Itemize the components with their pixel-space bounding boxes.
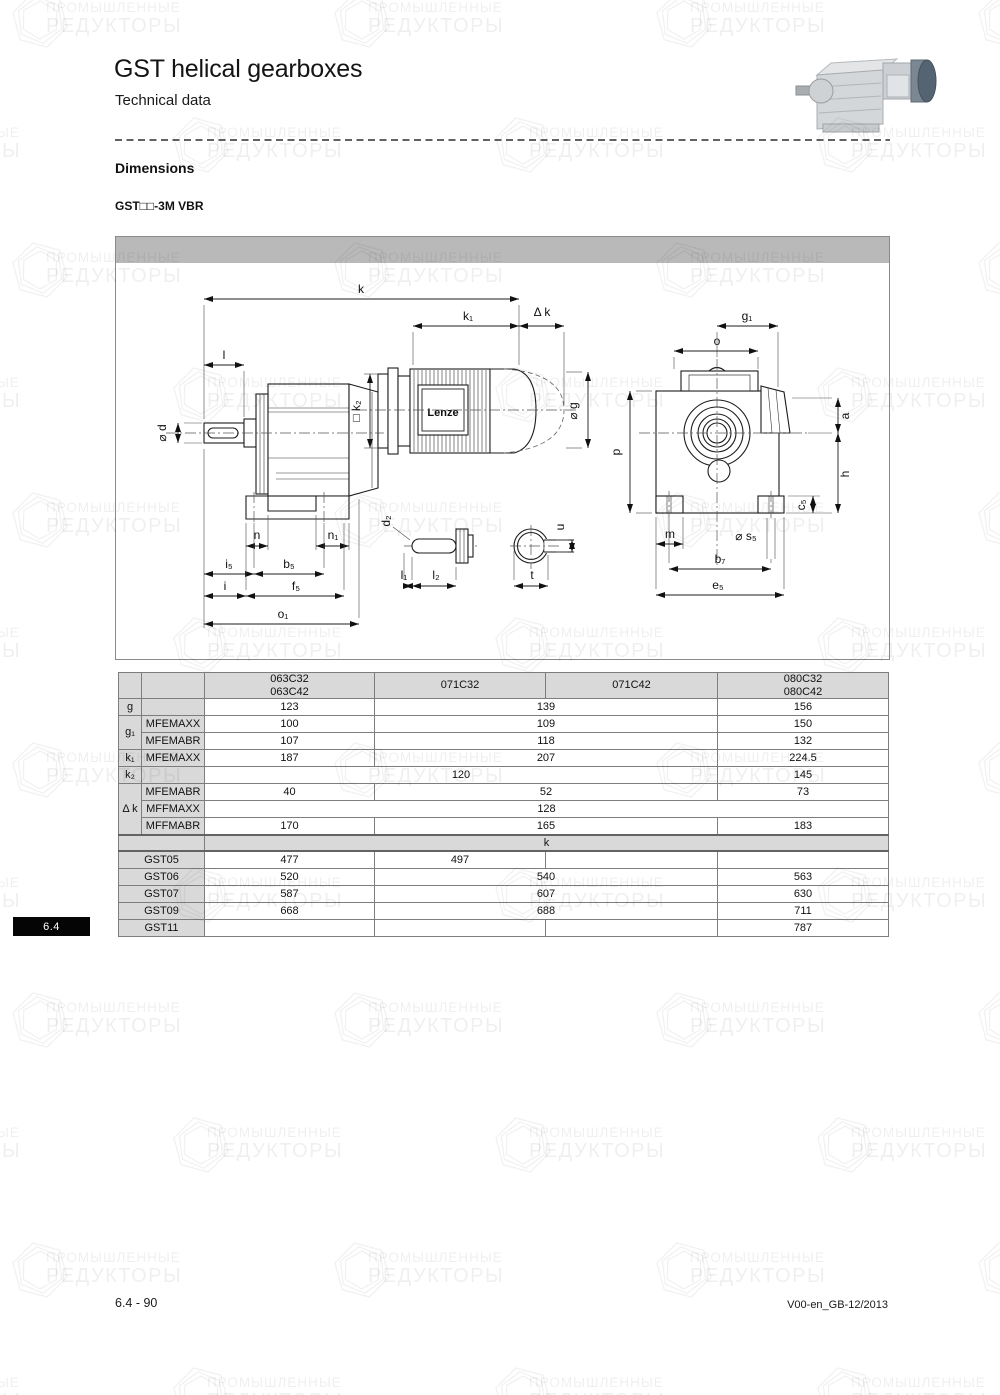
watermark-text-line1: ПРОМЫШЛЕННЫЕ	[207, 1125, 343, 1140]
watermark-item: ПРОМЫШЛЕННЫЕРЕДУКТОРЫ	[974, 738, 1000, 802]
dim-label-a: a	[838, 412, 852, 419]
watermark-text-line2: РЕДУКТОРЫ	[529, 1390, 665, 1395]
value-cell: 170	[205, 818, 375, 836]
table-row-g1-mfemabr: MFEMABR 107 118 132	[119, 733, 889, 750]
corner-cell	[119, 673, 142, 699]
dim-label-f5: f₅	[292, 579, 300, 593]
chapter-tab: 6.4	[13, 917, 90, 936]
value-cell: 52	[375, 784, 718, 801]
watermark-hexagon-logo	[8, 238, 72, 302]
table-row-gst06: GST06 520 540 563	[119, 869, 889, 886]
value-cell: 128	[205, 801, 889, 818]
value-cell: 132	[718, 733, 889, 750]
watermark-hexagon-logo	[169, 1363, 233, 1395]
value-cell: 123	[205, 699, 375, 716]
value-cell: 787	[718, 920, 889, 937]
watermark-text-line1: ПРОМЫШЛЕННЫЕ	[46, 0, 182, 15]
sub-label-cell: MFEMABR	[142, 733, 205, 750]
watermark-hexagon-logo	[8, 1238, 72, 1302]
page-title: GST helical gearboxes	[114, 55, 362, 84]
watermark-text-line2: РЕДУКТОРЫ	[0, 140, 21, 163]
dim-label-d: ⌀ d	[155, 424, 169, 441]
sub-label-cell: MFEMAXX	[142, 716, 205, 733]
watermark-text-line2: РЕДУКТОРЫ	[368, 15, 504, 38]
watermark-hexagon-logo	[491, 1113, 555, 1177]
watermark-text-line1: ПРОМЫШЛЕННЫЕ	[529, 1375, 665, 1390]
value-cell	[375, 920, 546, 937]
dim-label-k2: □ k₂	[349, 400, 363, 422]
dim-label-b5: b₅	[283, 557, 295, 571]
col-header-line: 063C42	[205, 686, 374, 699]
sub-label-cell	[142, 699, 205, 716]
sub-label-cell: MFEMABR	[142, 784, 205, 801]
value-cell: 107	[205, 733, 375, 750]
dim-label-h: h	[838, 471, 852, 478]
catalog-page: GST helical gearboxes Technical data Dim…	[0, 0, 1000, 1395]
value-cell: 100	[205, 716, 375, 733]
gst-label-cell: GST07	[119, 886, 205, 903]
dimensions-heading: Dimensions	[115, 160, 194, 176]
dim-label-i: i	[224, 579, 227, 593]
watermark-hexagon-logo	[491, 113, 555, 177]
watermark-text-line2: РЕДУКТОРЫ	[690, 1015, 826, 1038]
watermark-item: ПРОМЫШЛЕННЫЕРЕДУКТОРЫ	[974, 0, 1000, 52]
watermark-hexagon-logo	[8, 988, 72, 1052]
table-row-k2: k₂ 120 145	[119, 767, 889, 784]
value-cell: 73	[718, 784, 889, 801]
watermark-text-line2: РЕДУКТОРЫ	[529, 1140, 665, 1163]
table-row-dk-mffmaxx: MFFMAXX 128	[119, 801, 889, 818]
col-header-071c32: 071C32	[375, 673, 546, 699]
watermark-text-line1: ПРОМЫШЛЕННЫЕ	[851, 1375, 987, 1390]
value-cell: 120	[205, 767, 718, 784]
watermark-text-line1: ПРОМЫШЛЕННЫЕ	[0, 375, 21, 390]
watermark-hexagon-logo	[652, 1238, 716, 1302]
value-cell: 183	[718, 818, 889, 836]
watermark-text-line2: РЕДУКТОРЫ	[46, 1015, 182, 1038]
watermark-text-line2: РЕДУКТОРЫ	[368, 1265, 504, 1288]
dim-label-p: p	[609, 448, 623, 455]
dim-label-e5: e₅	[712, 578, 724, 592]
watermark-item: ПРОМЫШЛЕННЫЕРЕДУКТОРЫ	[0, 113, 21, 177]
dim-label-l1: l₁	[401, 568, 408, 582]
watermark-hexagon-logo	[974, 488, 1000, 552]
watermark-item: ПРОМЫШЛЕННЫЕРЕДУКТОРЫ	[169, 113, 343, 177]
dashed-separator	[115, 138, 890, 142]
watermark-item: ПРОМЫШЛЕННЫЕРЕДУКТОРЫ	[974, 1238, 1000, 1302]
watermark-text-line2: РЕДУКТОРЫ	[207, 1140, 343, 1163]
drawing-header-band	[116, 237, 889, 263]
dim-label-t: t	[530, 568, 534, 582]
value-cell: 118	[375, 733, 718, 750]
dim-label-n1: n₁	[328, 528, 339, 542]
watermark-hexagon-logo	[8, 0, 72, 52]
dim-label-o1: o₁	[278, 607, 289, 621]
sub-label-cell	[142, 767, 205, 784]
table-row-dk-mfemabr: Δ k MFEMABR 40 52 73	[119, 784, 889, 801]
watermark-hexagon-logo	[169, 1113, 233, 1177]
value-cell: 540	[375, 869, 718, 886]
dimension-drawing: Lenze k k₁	[115, 236, 890, 660]
col-header-071c42: 071C42	[546, 673, 718, 699]
key-detail: d₂ l₁ l₂ u	[379, 515, 574, 586]
value-cell: 145	[718, 767, 889, 784]
dim-label-m: m	[665, 527, 675, 541]
watermark-text-line1: ПРОМЫШЛЕННЫЕ	[0, 875, 21, 890]
watermark-item: ПРОМЫШЛЕННЫЕРЕДУКТОРЫ	[0, 613, 21, 677]
watermark-text-line2: РЕДУКТОРЫ	[690, 15, 826, 38]
value-cell: 520	[205, 869, 375, 886]
sub-label-cell: MFEMAXX	[142, 750, 205, 767]
table-k-band-row: k	[119, 835, 889, 851]
dim-label-s5: ⌀ s₅	[735, 529, 757, 543]
watermark-hexagon-logo	[974, 738, 1000, 802]
watermark-text-line1: ПРОМЫШЛЕННЫЕ	[368, 0, 504, 15]
watermark-hexagon-logo	[974, 238, 1000, 302]
watermark-text-line1: ПРОМЫШЛЕННЫЕ	[0, 1375, 21, 1390]
table-row-gst05: GST05 477 497	[119, 851, 889, 869]
watermark-text-line2: РЕДУКТОРЫ	[851, 140, 987, 163]
value-cell: 587	[205, 886, 375, 903]
watermark-hexagon-logo	[813, 1113, 877, 1177]
watermark-text-line1: ПРОМЫШЛЕННЫЕ	[690, 0, 826, 15]
variant-label: GST□□-3M VBR	[115, 199, 204, 213]
value-cell: 630	[718, 886, 889, 903]
watermark-item: ПРОМЫШЛЕННЫЕРЕДУКТОРЫ	[0, 363, 21, 427]
dim-label-u: u	[553, 524, 567, 531]
drawing-svg: Lenze k k₁	[116, 237, 889, 659]
value-cell: 497	[375, 851, 546, 869]
watermark-hexagon-logo	[330, 1238, 394, 1302]
watermark-hexagon-logo	[8, 738, 72, 802]
gst-label-cell: GST11	[119, 920, 205, 937]
dim-label-d2: d₂	[379, 515, 393, 527]
gst-label-cell: GST06	[119, 869, 205, 886]
brand-logo: Lenze	[427, 407, 458, 419]
watermark-item: ПРОМЫШЛЕННЫЕРЕДУКТОРЫ	[652, 1238, 826, 1302]
watermark-text-line1: ПРОМЫШЛЕННЫЕ	[0, 125, 21, 140]
col-header-080: 080C32080C42	[718, 673, 889, 699]
watermark-item: ПРОМЫШЛЕННЫЕРЕДУКТОРЫ	[813, 1363, 987, 1395]
dim-label-cell: g	[119, 699, 142, 716]
watermark-hexagon-logo	[652, 988, 716, 1052]
sub-label-cell: MFFMABR	[142, 818, 205, 836]
watermark-text-line2: РЕДУКТОРЫ	[0, 1390, 21, 1395]
value-cell	[718, 851, 889, 869]
watermark-text-line1: ПРОМЫШЛЕННЫЕ	[851, 1125, 987, 1140]
watermark-item: ПРОМЫШЛЕННЫЕРЕДУКТОРЫ	[974, 238, 1000, 302]
dim-label-l: l	[223, 348, 226, 362]
value-cell: 187	[205, 750, 375, 767]
table-row-g1-mfemaxx: g₁ MFEMAXX 100 109 150	[119, 716, 889, 733]
table-row-gst11: GST11 787	[119, 920, 889, 937]
watermark-text-line1: ПРОМЫШЛЕННЫЕ	[207, 1375, 343, 1390]
watermark-item: ПРОМЫШЛЕННЫЕРЕДУКТОРЫ	[0, 1363, 21, 1395]
table-row-gst09: GST09 668 688 711	[119, 903, 889, 920]
value-cell: 165	[375, 818, 718, 836]
watermark-item: ПРОМЫШЛЕННЫЕРЕДУКТОРЫ	[169, 1363, 343, 1395]
col-header-063: 063C32063C42	[205, 673, 375, 699]
watermark-text-line2: РЕДУКТОРЫ	[0, 1140, 21, 1163]
table-row-gst07: GST07 587 607 630	[119, 886, 889, 903]
value-cell: 40	[205, 784, 375, 801]
k-band-cell: k	[205, 835, 889, 851]
dim-label-l2: l₂	[432, 568, 440, 582]
watermark-item: ПРОМЫШЛЕННЫЕРЕДУКТОРЫ	[169, 1113, 343, 1177]
dim-label-cell: k₁	[119, 750, 142, 767]
dim-label-n: n	[254, 528, 261, 542]
col-header-line: 080C42	[718, 686, 888, 699]
value-cell: 688	[375, 903, 718, 920]
value-cell: 563	[718, 869, 889, 886]
dim-label-k: k	[358, 282, 365, 296]
gst-label-cell: GST09	[119, 903, 205, 920]
watermark-item: ПРОМЫШЛЕННЫЕРЕДУКТОРЫ	[652, 988, 826, 1052]
watermark-hexagon-logo	[974, 1238, 1000, 1302]
watermark-hexagon-logo	[974, 0, 1000, 52]
watermark-item: ПРОМЫШЛЕННЫЕРЕДУКТОРЫ	[0, 1113, 21, 1177]
dim-label-o: o	[714, 334, 721, 348]
watermark-item: ПРОМЫШЛЕННЫЕРЕДУКТОРЫ	[813, 1113, 987, 1177]
watermark-hexagon-logo	[974, 988, 1000, 1052]
watermark-text-line2: РЕДУКТОРЫ	[368, 1015, 504, 1038]
watermark-item: ПРОМЫШЛЕННЫЕРЕДУКТОРЫ	[974, 488, 1000, 552]
watermark-text-line1: ПРОМЫШЛЕННЫЕ	[46, 1250, 182, 1265]
watermark-text-line2: РЕДУКТОРЫ	[0, 390, 21, 413]
value-cell: 109	[375, 716, 718, 733]
watermark-item: ПРОМЫШЛЕННЫЕРЕДУКТОРЫ	[330, 988, 504, 1052]
watermark-text-line1: ПРОМЫШЛЕННЫЕ	[690, 1000, 826, 1015]
page-subtitle: Technical data	[115, 92, 211, 109]
col-header-line: 080C32	[718, 673, 888, 686]
dimension-table: 063C32063C42 071C32 071C42 080C32080C42 …	[118, 672, 889, 937]
value-cell: 607	[375, 886, 718, 903]
k-band-label-cell	[119, 835, 205, 851]
value-cell: 156	[718, 699, 889, 716]
dim-label-cell: Δ k	[119, 784, 142, 836]
watermark-text-line1: ПРОМЫШЛЕННЫЕ	[368, 1000, 504, 1015]
watermark-item: ПРОМЫШЛЕННЫЕРЕДУКТОРЫ	[491, 113, 665, 177]
watermark-hexagon-logo	[8, 488, 72, 552]
watermark-text-line2: РЕДУКТОРЫ	[207, 1390, 343, 1395]
value-cell: 224.5	[718, 750, 889, 767]
dim-label-g: ⌀ g	[566, 402, 580, 419]
table-header-row: 063C32063C42 071C32 071C42 080C32080C42	[119, 673, 889, 699]
watermark-text-line1: ПРОМЫШЛЕННЫЕ	[0, 625, 21, 640]
col-header-line: 063C32	[205, 673, 374, 686]
watermark-text-line2: РЕДУКТОРЫ	[851, 1140, 987, 1163]
watermark-text-line1: ПРОМЫШЛЕННЫЕ	[368, 1250, 504, 1265]
watermark-item: ПРОМЫШЛЕННЫЕРЕДУКТОРЫ	[491, 1113, 665, 1177]
value-cell: 150	[718, 716, 889, 733]
watermark-hexagon-logo	[330, 988, 394, 1052]
gst-label-cell: GST05	[119, 851, 205, 869]
watermark-text-line2: РЕДУКТОРЫ	[0, 890, 21, 913]
dim-label-dk: Δ k	[534, 305, 552, 319]
watermark-text-line2: РЕДУКТОРЫ	[46, 1265, 182, 1288]
watermark-text-line2: РЕДУКТОРЫ	[207, 140, 343, 163]
dim-label-b7: b₇	[715, 552, 726, 566]
footer-page-number: 6.4 - 90	[115, 1296, 157, 1310]
value-cell	[205, 920, 375, 937]
watermark-hexagon-logo	[491, 1363, 555, 1395]
value-cell: 139	[375, 699, 718, 716]
value-cell: 477	[205, 851, 375, 869]
watermark-item: ПРОМЫШЛЕННЫЕРЕДУКТОРЫ	[8, 1238, 182, 1302]
dim-label-g1: g₁	[742, 309, 753, 323]
value-cell: 207	[375, 750, 718, 767]
watermark-item: ПРОМЫШЛЕННЫЕРЕДУКТОРЫ	[974, 988, 1000, 1052]
watermark-item: ПРОМЫШЛЕННЫЕРЕДУКТОРЫ	[8, 988, 182, 1052]
corner-cell	[142, 673, 205, 699]
watermark-hexagon-logo	[813, 1363, 877, 1395]
dim-label-k1: k₁	[463, 309, 473, 323]
dim-label-cell: g₁	[119, 716, 142, 750]
product-photo	[795, 45, 940, 135]
watermark-text-line1: ПРОМЫШЛЕННЫЕ	[0, 1125, 21, 1140]
dim-label-c5: c₅	[794, 499, 808, 510]
watermark-text-line2: РЕДУКТОРЫ	[0, 640, 21, 663]
dim-label-cell: k₂	[119, 767, 142, 784]
watermark-text-line2: РЕДУКТОРЫ	[690, 1265, 826, 1288]
sub-label-cell: MFFMAXX	[142, 801, 205, 818]
watermark-item: ПРОМЫШЛЕННЫЕРЕДУКТОРЫ	[8, 0, 182, 52]
watermark-text-line1: ПРОМЫШЛЕННЫЕ	[690, 1250, 826, 1265]
watermark-text-line2: РЕДУКТОРЫ	[529, 140, 665, 163]
value-cell: 668	[205, 903, 375, 920]
value-cell	[546, 851, 718, 869]
watermark-hexagon-logo	[652, 0, 716, 52]
watermark-hexagon-logo	[330, 0, 394, 52]
table-row-dk-mffmabr: MFFMABR 170 165 183	[119, 818, 889, 836]
side-view: Lenze	[166, 368, 578, 523]
watermark-item: ПРОМЫШЛЕННЫЕРЕДУКТОРЫ	[491, 1363, 665, 1395]
watermark-text-line1: ПРОМЫШЛЕННЫЕ	[529, 1125, 665, 1140]
table-row-g: g 123 139 156	[119, 699, 889, 716]
footer-doc-code: V00-en_GB-12/2013	[787, 1299, 888, 1311]
watermark-item: ПРОМЫШЛЕННЫЕРЕДУКТОРЫ	[330, 1238, 504, 1302]
watermark-text-line2: РЕДУКТОРЫ	[46, 15, 182, 38]
watermark-text-line2: РЕДУКТОРЫ	[851, 1390, 987, 1395]
value-cell	[546, 920, 718, 937]
watermark-text-line1: ПРОМЫШЛЕННЫЕ	[46, 1000, 182, 1015]
watermark-item: ПРОМЫШЛЕННЫЕРЕДУКТОРЫ	[330, 0, 504, 52]
dim-label-i5: i₅	[225, 557, 233, 571]
value-cell: 711	[718, 903, 889, 920]
table-row-k1: k₁ MFEMAXX 187 207 224.5	[119, 750, 889, 767]
